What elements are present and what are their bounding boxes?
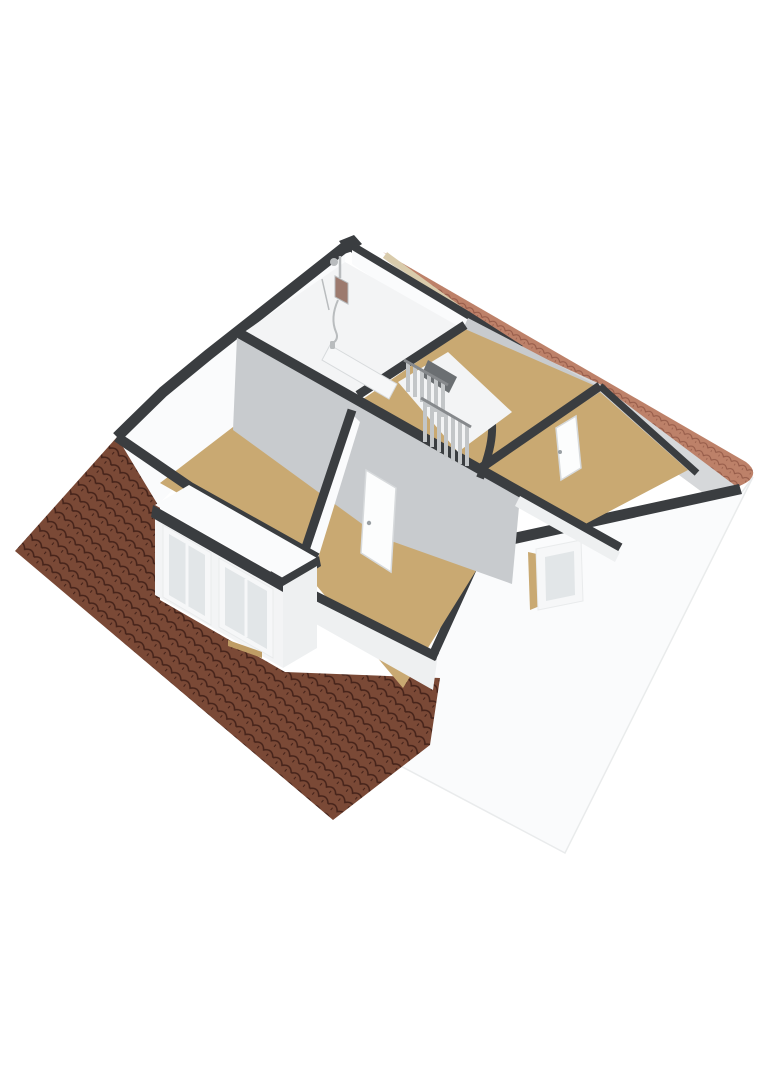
door-handle — [367, 521, 371, 525]
gable-window-glass — [545, 551, 575, 601]
shower-handset — [330, 341, 335, 349]
floorplan-render — [0, 0, 764, 1080]
door-leaf — [361, 470, 396, 572]
floorplan-canvas — [0, 0, 764, 1080]
door-right-bedroom — [556, 416, 581, 480]
door-handle — [558, 450, 562, 454]
shower-head — [330, 258, 338, 266]
gable-window — [528, 540, 583, 610]
door-leaf — [556, 416, 581, 480]
door-back-bedroom — [361, 470, 396, 572]
